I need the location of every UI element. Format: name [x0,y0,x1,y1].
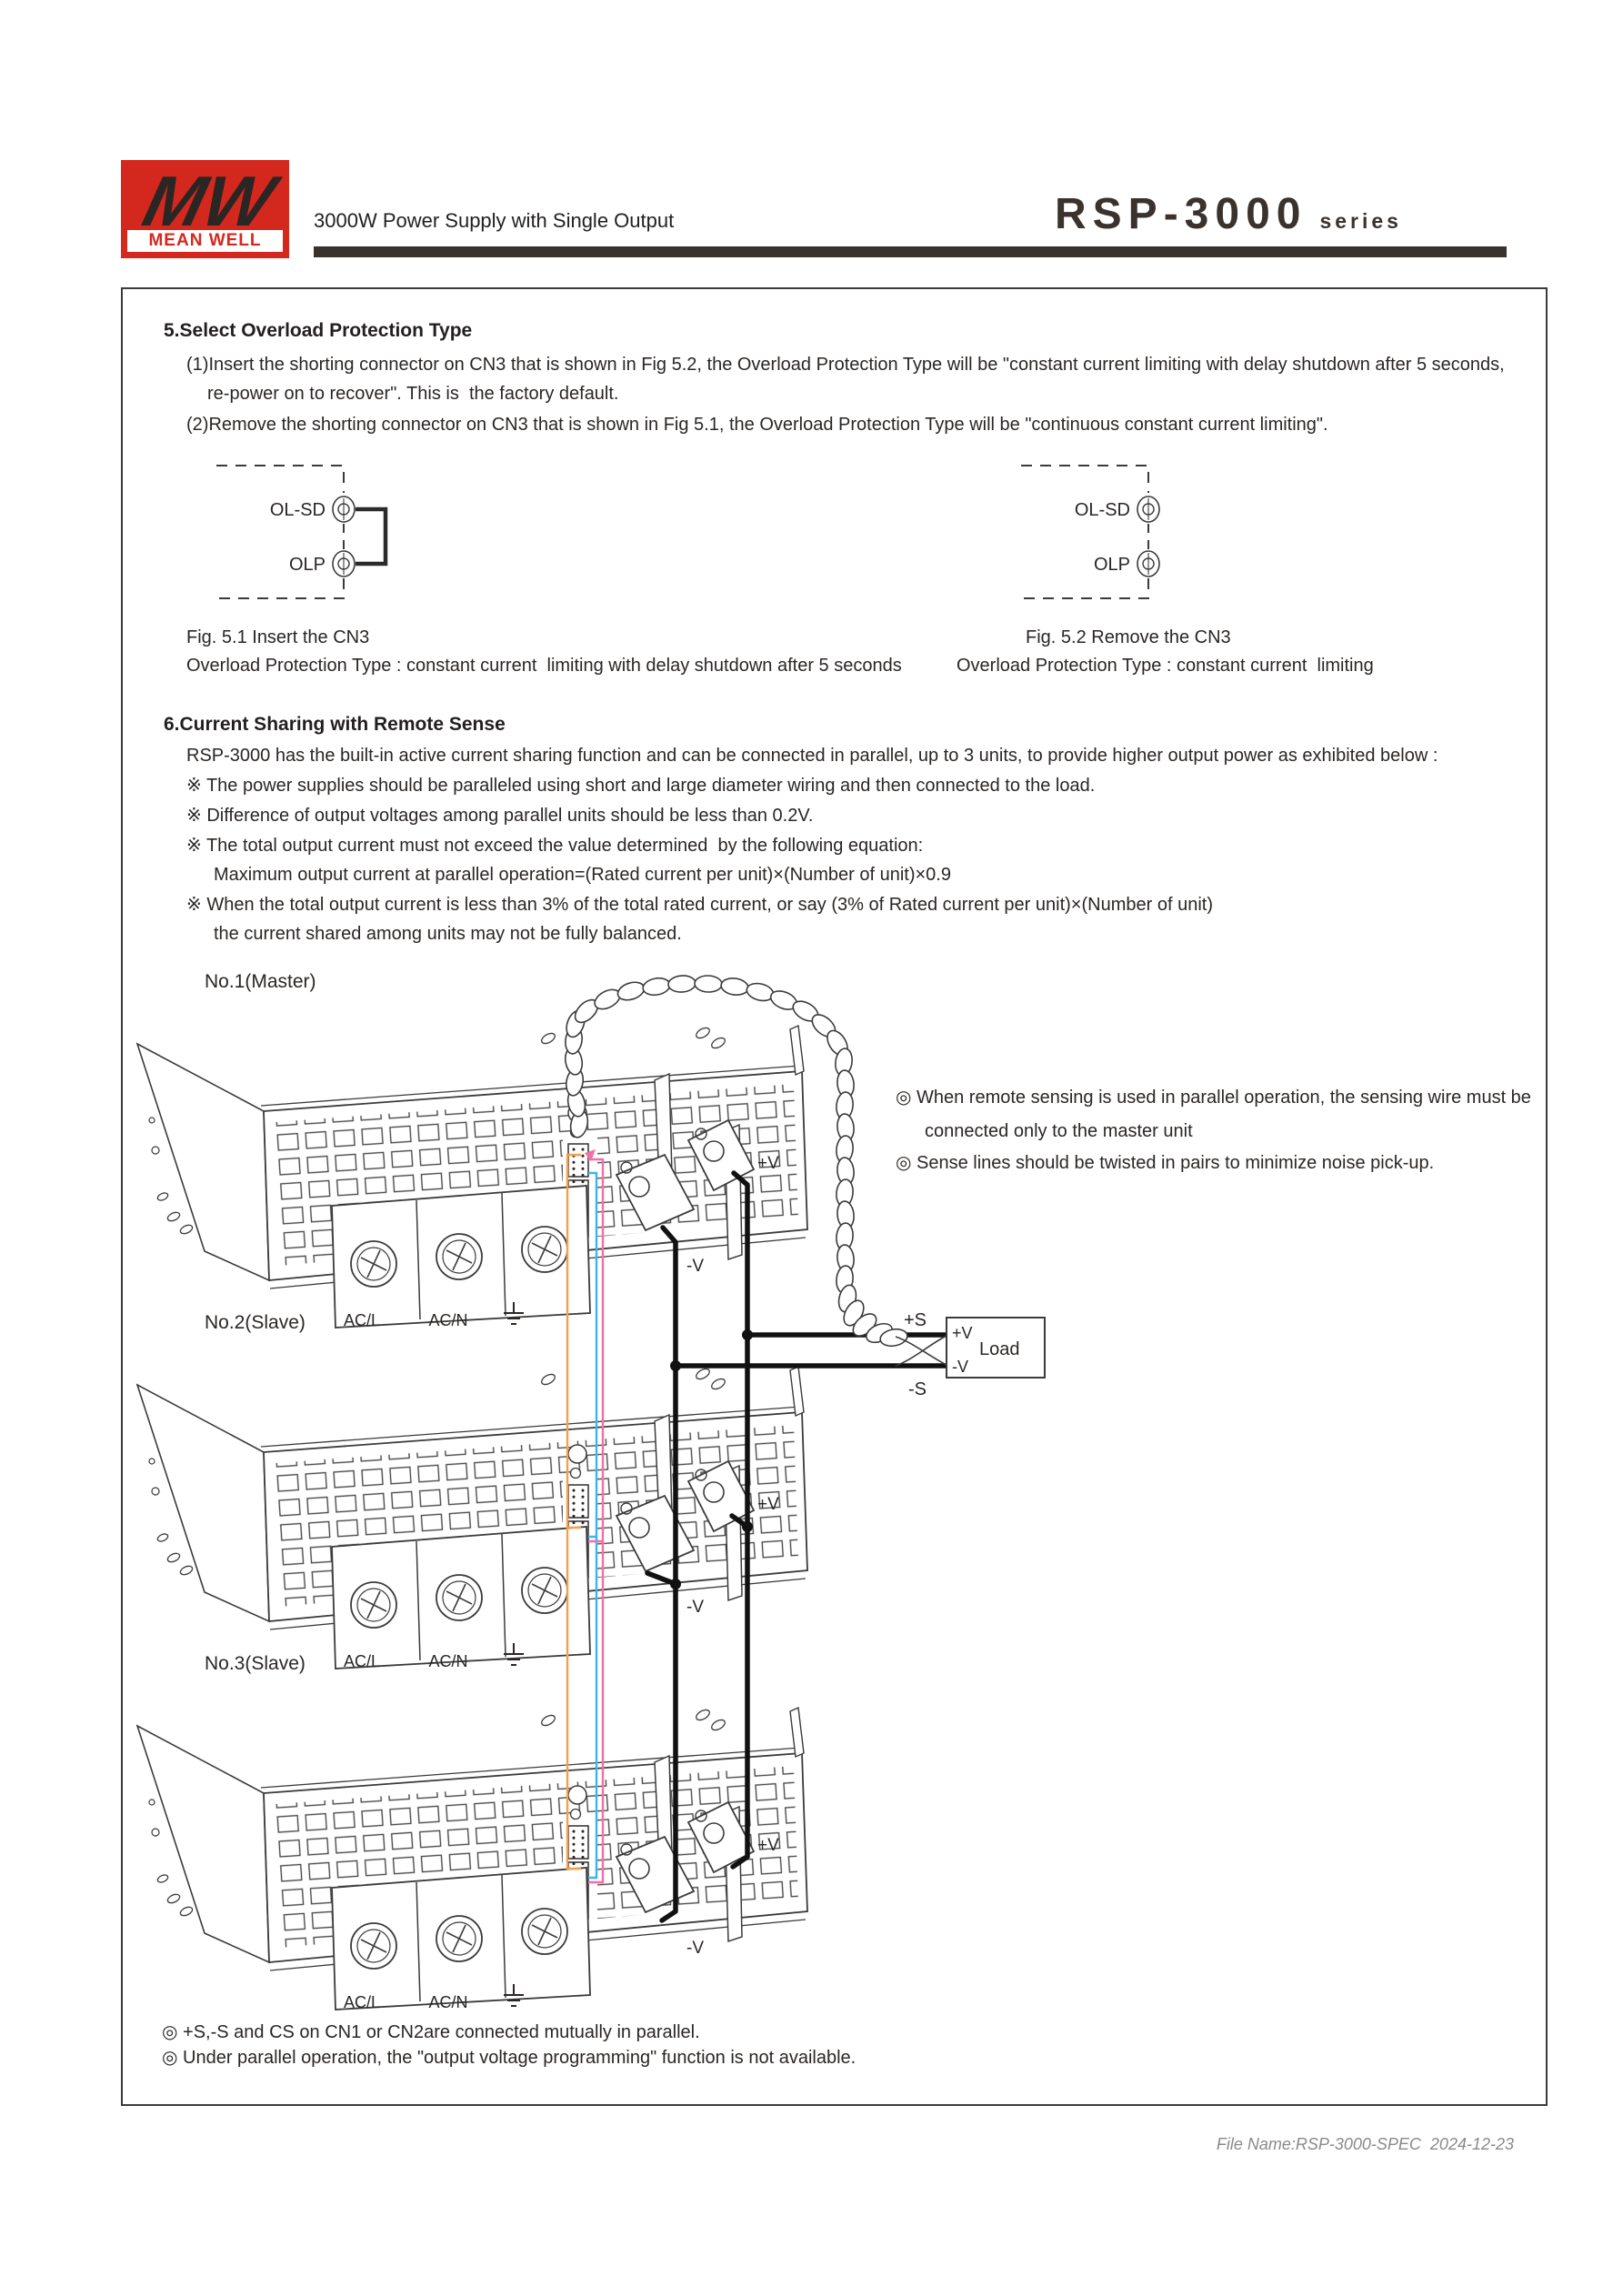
meanwell-logo: MW MEAN WELL [121,160,289,258]
footer-filename: File Name:RSP-3000-SPEC 2024-12-23 [1217,2135,1514,2154]
section6-bullet1: ※ The power supplies should be parallele… [186,776,1095,797]
unit1-vminus-label: -V [686,1257,704,1276]
cn3-dashed-outline-top [216,466,344,493]
page: { "header": { "logo": { "mw": "MW", "bra… [0,0,1623,2296]
section6-bullet2: ※ Difference of output voltages among pa… [186,806,813,827]
unit3-acn-label: AC/N [428,1993,467,2011]
brand-name: MEAN WELL [127,230,283,252]
unit2-acn-label: AC/N [428,1652,467,1670]
footnote-1: ◎ +S,-S and CS on CN1 or CN2are connecte… [162,2022,700,2043]
fig-5-2: OL-SD OLP [1005,453,1214,621]
olsd-label: OL-SD [270,500,326,520]
junction-dot [742,1521,753,1532]
section5-item1-line1: (1)Insert the shorting connector on CN3 … [186,355,1505,376]
unit1-vplus-label: +V [757,1154,779,1173]
junction-dot [742,1329,753,1340]
fig-5-1-caption2: Overload Protection Type : constant curr… [186,656,902,677]
section6-intro: RSP-3000 has the built-in active current… [186,746,1438,767]
psu-unit-3 [137,1708,807,2010]
terminal-olsd [333,496,355,522]
section5-item1-line2: re-power on to recover". This is the fac… [207,384,619,405]
section6-bullet3: ※ The total output current must not exce… [186,836,923,857]
olsd-label: OL-SD [1075,500,1130,520]
series-title: RSP-3000 series [1055,189,1402,239]
unit2-vplus-label: +V [757,1495,779,1514]
series-suffix: series [1319,209,1402,234]
unit3-label: No.3(Slave) [205,1653,306,1674]
fig-5-2-caption2: Overload Protection Type : constant curr… [957,656,1374,677]
cn3-dashed-outline-bottom [1021,578,1148,598]
junction-dot [670,1579,681,1589]
psu-unit-2 [137,1367,807,1669]
sminus-label: -S [908,1379,927,1399]
fig-5-1-caption: Fig. 5.1 Insert the CN3 [186,627,369,648]
sensing-note1-line2: connected only to the master unit [925,1121,1193,1142]
footnote-2: ◎ Under parallel operation, the "output … [162,2048,856,2069]
terminal-olp [333,551,355,577]
unit1-label: No.1(Master) [205,971,316,992]
junction-dot [670,1360,681,1371]
sensing-note2: ◎ Sense lines should be twisted in pairs… [896,1153,1434,1174]
cn3-dashed-outline-top [1021,466,1148,493]
load-label: Load [979,1339,1020,1359]
section6-heading: 6.Current Sharing with Remote Sense [164,714,506,736]
terminal-olsd [1137,496,1159,522]
load-vminus-label: -V [952,1358,968,1376]
unit3-vplus-label: +V [757,1836,779,1855]
page-title: 3000W Power Supply with Single Output [314,209,674,233]
olp-label: OLP [1094,555,1130,575]
unit3-acl-label: AC/L [344,1993,380,2011]
unit3-vminus-label: -V [686,1939,704,1958]
unit2-acl-label: AC/L [344,1652,380,1670]
section6-bullet4-line2: the current shared among units may not b… [214,924,682,945]
section5-heading: 5.Select Overload Protection Type [164,320,472,342]
olp-label: OLP [289,555,326,575]
unit1-acn-label: AC/N [428,1311,467,1329]
load-box: +V -V Load [947,1318,1045,1378]
load-vplus-label: +V [952,1324,973,1342]
section6-bullet3-formula: Maximum output current at parallel opera… [214,865,951,886]
terminal-olp [1137,551,1159,577]
sensing-note1-line1: ◎ When remote sensing is used in paralle… [896,1088,1531,1108]
section5-item2: (2)Remove the shorting connector on CN3 … [186,415,1328,436]
psu-unit-1 [137,1026,807,1328]
series-name: RSP-3000 [1055,189,1307,239]
splus-label: +S [904,1310,927,1330]
unit2-vminus-label: -V [686,1598,704,1617]
unit2-label: No.2(Slave) [205,1312,306,1333]
cn3-dashed-outline-bottom [216,578,344,598]
section6-bullet4-line1: ※ When the total output current is less … [186,895,1213,916]
fig-5-1: OL-SD OLP [200,453,409,621]
fig-5-2-caption: Fig. 5.2 Remove the CN3 [1026,627,1231,648]
unit1-acl-label: AC/L [344,1311,380,1329]
svg-text:MW: MW [136,161,288,241]
shorting-connector [356,509,386,564]
header-rule [314,246,1507,257]
